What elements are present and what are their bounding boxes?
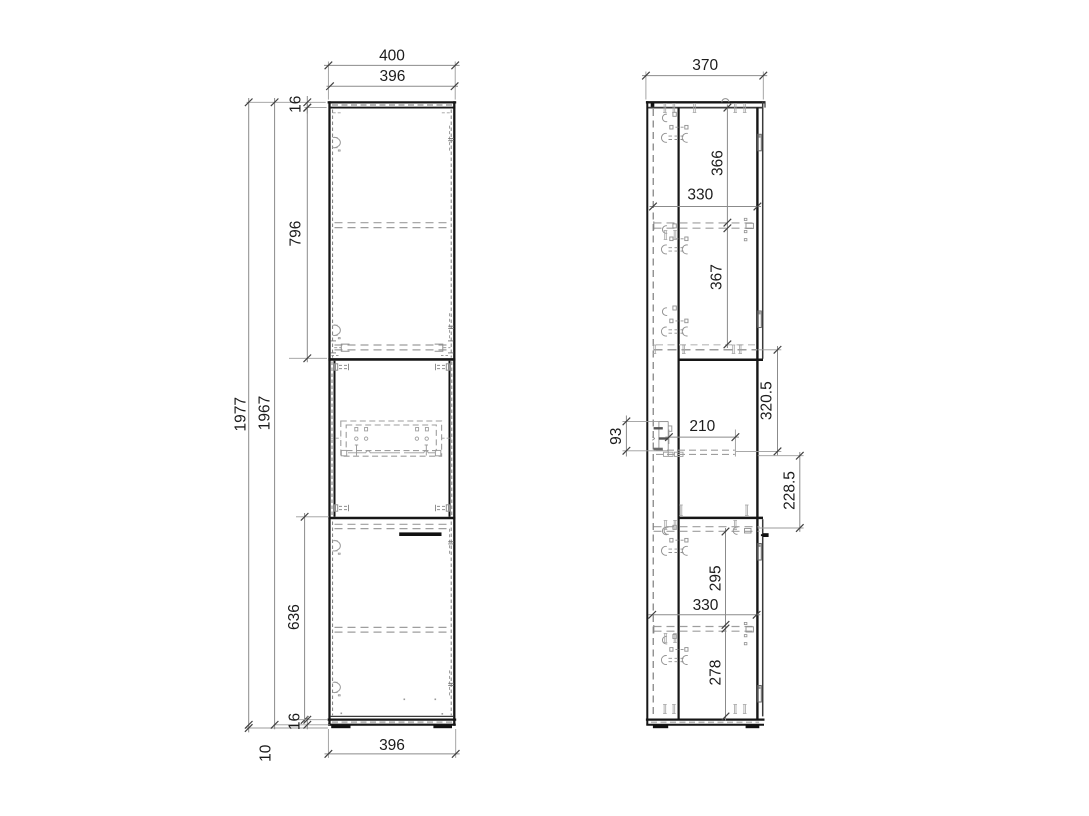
svg-text:93: 93 <box>608 428 625 445</box>
svg-text:796: 796 <box>288 221 305 247</box>
svg-text:396: 396 <box>379 68 405 85</box>
svg-text:400: 400 <box>379 48 405 65</box>
svg-text:16: 16 <box>287 713 304 730</box>
svg-text:367: 367 <box>709 264 726 290</box>
svg-text:210: 210 <box>689 418 715 435</box>
svg-text:16: 16 <box>288 96 305 113</box>
svg-text:370: 370 <box>692 57 718 74</box>
svg-text:278: 278 <box>707 660 724 686</box>
svg-text:295: 295 <box>707 565 724 591</box>
svg-text:330: 330 <box>693 597 719 614</box>
svg-text:320.5: 320.5 <box>758 381 775 420</box>
svg-text:228.5: 228.5 <box>781 471 798 510</box>
svg-text:1977: 1977 <box>233 397 250 431</box>
svg-text:396: 396 <box>379 737 405 754</box>
svg-text:636: 636 <box>286 604 303 630</box>
svg-text:330: 330 <box>687 187 713 204</box>
svg-text:1967: 1967 <box>257 396 274 430</box>
svg-text:366: 366 <box>709 150 726 176</box>
svg-text:10: 10 <box>258 744 275 762</box>
